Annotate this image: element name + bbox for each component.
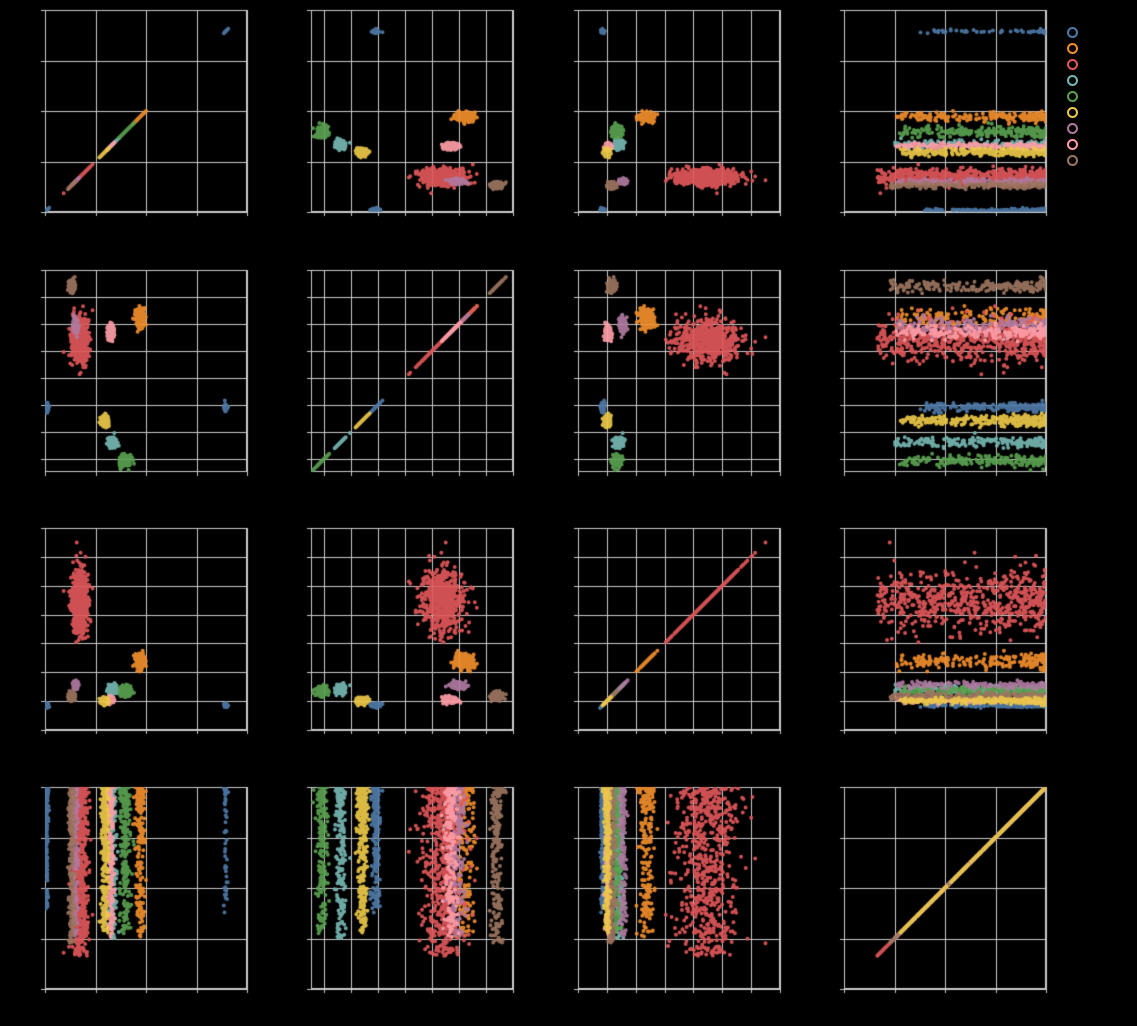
legend-marker-pink: [1067, 139, 1078, 150]
subplot-r4c2: [303, 779, 521, 997]
subplot-r3c3: [570, 520, 788, 738]
subplot-r1c2: [303, 2, 521, 220]
scatter-canvas-r4c4: [836, 779, 1054, 997]
legend-marker-red: [1067, 59, 1078, 70]
subplot-r4c3: [570, 779, 788, 997]
legend-marker-purple: [1067, 123, 1078, 134]
scatter-canvas-r4c2: [303, 779, 521, 997]
legend-marker-blue: [1067, 27, 1078, 38]
subplot-r2c1: [37, 262, 255, 480]
legend-marker-teal: [1067, 75, 1078, 86]
pairplot-figure: [0, 0, 1137, 1026]
scatter-canvas-r1c4: [836, 2, 1054, 220]
scatter-canvas-r1c2: [303, 2, 521, 220]
scatter-canvas-r2c3: [570, 262, 788, 480]
scatter-canvas-r1c3: [570, 2, 788, 220]
scatter-canvas-r3c3: [570, 520, 788, 738]
subplot-r3c1: [37, 520, 255, 738]
scatter-canvas-r2c4: [836, 262, 1054, 480]
scatter-canvas-r3c2: [303, 520, 521, 738]
legend-marker-green: [1067, 91, 1078, 102]
scatter-canvas-r2c1: [37, 262, 255, 480]
scatter-canvas-r1c1: [37, 2, 255, 220]
subplot-r1c1: [37, 2, 255, 220]
subplot-r2c4: [836, 262, 1054, 480]
subplot-r4c4: [836, 779, 1054, 997]
legend-marker-brown: [1067, 155, 1078, 166]
subplot-r1c4: [836, 2, 1054, 220]
subplot-r1c3: [570, 2, 788, 220]
subplot-r3c4: [836, 520, 1054, 738]
subplot-r2c3: [570, 262, 788, 480]
legend-marker-yellow: [1067, 107, 1078, 118]
subplot-r2c2: [303, 262, 521, 480]
scatter-canvas-r2c2: [303, 262, 521, 480]
subplot-r3c2: [303, 520, 521, 738]
scatter-canvas-r3c1: [37, 520, 255, 738]
scatter-canvas-r3c4: [836, 520, 1054, 738]
legend-marker-orange: [1067, 43, 1078, 54]
subplot-r4c1: [37, 779, 255, 997]
scatter-canvas-r4c1: [37, 779, 255, 997]
scatter-canvas-r4c3: [570, 779, 788, 997]
